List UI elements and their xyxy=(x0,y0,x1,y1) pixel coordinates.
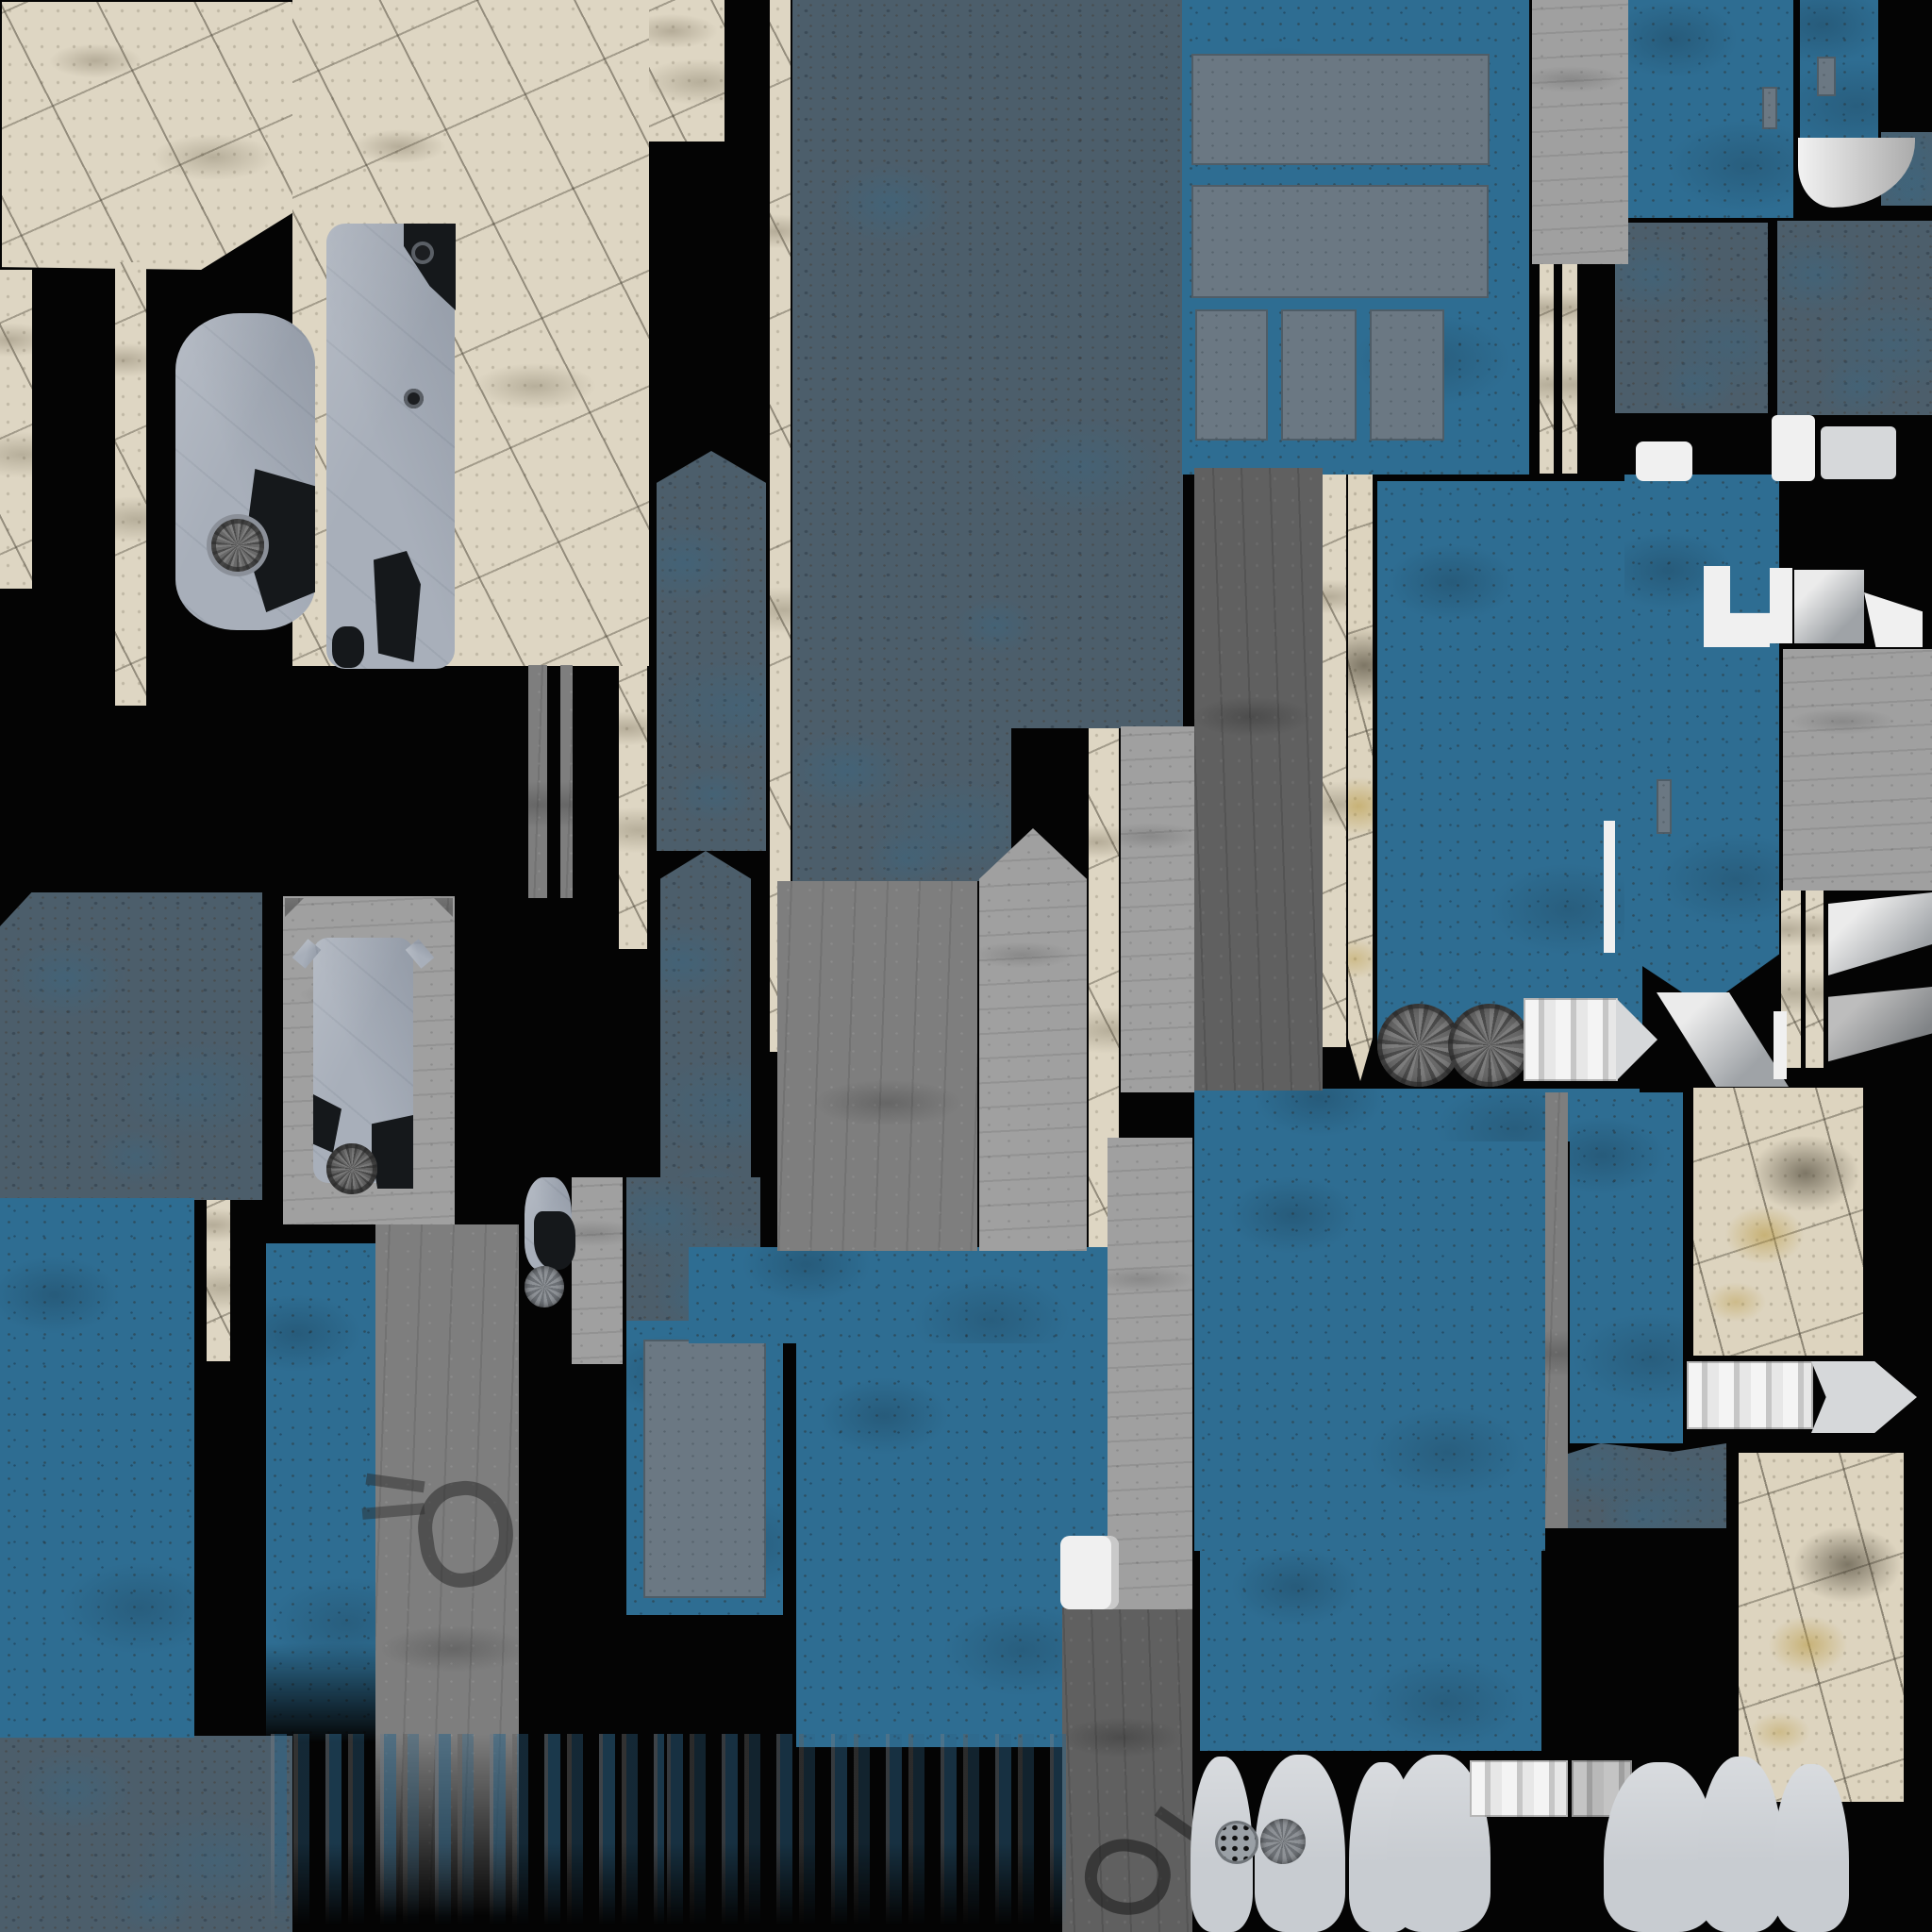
concrete-mid-right xyxy=(1121,726,1194,1092)
bumper-sprite-bar xyxy=(1770,568,1792,643)
facade-window-tall-3 xyxy=(1370,309,1444,441)
marble-strip-right-1 xyxy=(1323,470,1346,1047)
blue-panel-left-bright xyxy=(0,1198,194,1738)
wheel-fan-sprite-2 xyxy=(1448,1004,1531,1087)
white-bar-right xyxy=(1774,1011,1787,1079)
concrete-strip-c3 xyxy=(572,1177,623,1364)
blue-panel-12 xyxy=(1194,1141,1545,1551)
blue-panel-4-door xyxy=(1817,57,1836,96)
marble-tile-topleft xyxy=(2,2,313,270)
facade-window-wide-2 xyxy=(1191,185,1489,298)
grey-strip-mid xyxy=(1545,1092,1568,1528)
grill-sprite-bottom xyxy=(1470,1760,1568,1817)
blue-panel-13 xyxy=(1570,1092,1683,1443)
wedge-sprite-right xyxy=(1657,992,1789,1087)
white-bit-row-1 xyxy=(1636,441,1692,481)
strip-band-right xyxy=(660,1734,1066,1932)
blue-panel-5 xyxy=(1624,475,1779,1008)
white-bar-left xyxy=(1604,821,1615,953)
concrete-right-column xyxy=(1194,468,1323,1091)
concrete-block-mid xyxy=(777,881,977,1251)
concrete-thin-1 xyxy=(528,665,547,898)
marble-strip-t2 xyxy=(1806,891,1824,1068)
white-prop-sprite-mid xyxy=(1060,1536,1119,1609)
strip-band-left xyxy=(264,1734,664,1932)
facade-window-tall-1 xyxy=(1195,309,1268,441)
slate-lump-bottom xyxy=(1547,1443,1726,1528)
car-sprite-2-hub-1 xyxy=(411,241,434,264)
marble-top-extension xyxy=(649,0,724,142)
concrete-topright xyxy=(1532,0,1628,264)
car-sprite-3-fan xyxy=(326,1143,377,1194)
slate-panel-pentagon-1 xyxy=(657,451,766,851)
white-bit-row-3 xyxy=(1821,426,1896,479)
car-sprite-3-windshield xyxy=(372,1115,413,1189)
marble-strip-small-1 xyxy=(1540,262,1554,474)
concrete-strip-c4 xyxy=(1108,1138,1192,1609)
slate-panel-topright-a xyxy=(1615,223,1768,413)
marble-strip-right-2 xyxy=(1348,470,1373,1081)
blue-panel-4 xyxy=(1800,0,1878,140)
marble-strip-small-2 xyxy=(1562,262,1577,474)
blue-panel-8-inset xyxy=(643,1340,766,1598)
grill-sprite xyxy=(1524,998,1618,1081)
car-sprite-1-wheel xyxy=(211,519,264,572)
blue-panel-7 xyxy=(266,1243,377,1743)
lump-sprite-7 xyxy=(1774,1764,1849,1932)
blue-panel-5-door xyxy=(1657,779,1672,834)
slate-panel-topright-b xyxy=(1777,221,1932,415)
concrete-farright xyxy=(1783,649,1932,891)
grill-sprite-br xyxy=(1687,1361,1813,1429)
car-sprite-2-hub-2 xyxy=(404,389,424,408)
marble-block-bottomright-2 xyxy=(1739,1453,1904,1802)
slate-panel-bottomleft xyxy=(0,1736,292,1932)
chevron-farright-2 xyxy=(1828,987,1932,1072)
blue-panel-10 xyxy=(1200,1551,1541,1751)
blue-strip-c xyxy=(689,1247,1109,1343)
concrete-column-pointed xyxy=(979,828,1087,1251)
bumper-sprite-arrow xyxy=(1864,592,1923,647)
marble-block-bottomright-1 xyxy=(1693,1088,1863,1356)
bumper-sprite-grey xyxy=(1794,570,1864,643)
car-sprite-2-black-b2 xyxy=(332,626,364,668)
prop-seat-disc xyxy=(525,1266,564,1307)
marble-strip-col2-tail xyxy=(619,666,647,949)
blue-panel-2 xyxy=(1377,481,1642,1044)
manhole-disc-sprite xyxy=(1260,1819,1306,1864)
facade-window-tall-2 xyxy=(1281,309,1357,441)
blue-panel-3-door xyxy=(1762,87,1777,129)
white-bit-row-2 xyxy=(1772,415,1815,481)
prop-seat-black xyxy=(534,1211,575,1270)
concrete-thin-2 xyxy=(560,665,573,898)
car-sprite-2-black-b1 xyxy=(374,551,421,662)
arrow-sprite-br xyxy=(1811,1361,1917,1433)
marble-strip-left-mid xyxy=(115,262,146,706)
speaker-disc-sprite xyxy=(1215,1821,1258,1864)
slate-panel-big-tail xyxy=(792,728,1011,881)
marble-strip-c xyxy=(207,1187,230,1361)
marble-strip-left-edge xyxy=(0,270,32,589)
slate-panel-left xyxy=(0,892,262,1200)
chevron-farright-1 xyxy=(1828,892,1932,987)
slate-panel-big xyxy=(792,0,1183,728)
texture-atlas-canvas xyxy=(0,0,1932,1932)
facade-window-wide-1 xyxy=(1191,54,1490,165)
lump-sprite-6 xyxy=(1698,1757,1783,1932)
